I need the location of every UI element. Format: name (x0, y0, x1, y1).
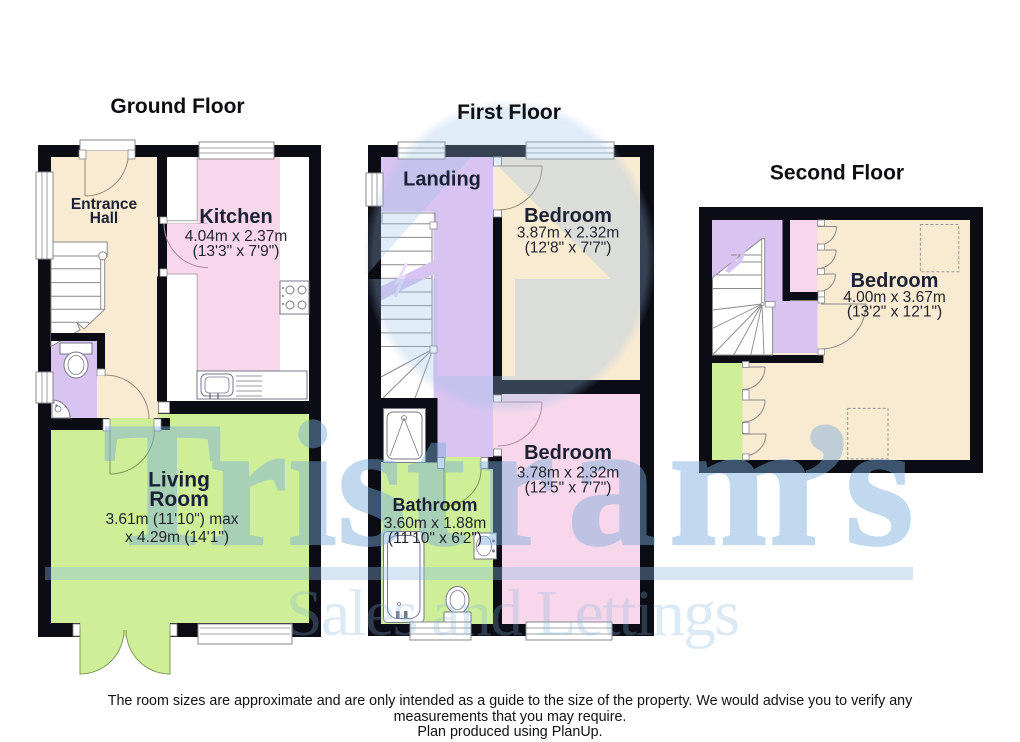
svg-text:x 4.29m (14'1"): x 4.29m (14'1") (125, 529, 229, 546)
svg-text:Second Floor: Second Floor (770, 162, 904, 185)
svg-text:3.61m (11'10") max: 3.61m (11'10") max (105, 511, 238, 528)
svg-text:First Floor: First Floor (457, 101, 561, 124)
svg-text:Plan produced using PlanUp.: Plan produced using PlanUp. (417, 724, 602, 740)
svg-text:(13'3" x 7'9"): (13'3" x 7'9") (193, 243, 280, 260)
svg-text:Kitchen: Kitchen (199, 206, 272, 228)
svg-text:(12'5" x 7'7"): (12'5" x 7'7") (525, 480, 612, 497)
svg-text:Sales and Lettings: Sales and Lettings (286, 577, 740, 650)
svg-text:Hall: Hall (90, 210, 118, 227)
svg-text:Ground Floor: Ground Floor (110, 95, 244, 118)
svg-text:(13'2" x 12'1"): (13'2" x 12'1") (847, 304, 942, 321)
svg-text:measurements that you may requ: measurements that you may require. (394, 709, 627, 725)
svg-text:Tristram’s: Tristram’s (103, 385, 914, 583)
svg-text:(12'8" x 7'7"): (12'8" x 7'7") (525, 240, 612, 257)
svg-text:Bathroom: Bathroom (393, 495, 478, 515)
svg-text:Bedroom: Bedroom (524, 442, 612, 464)
svg-text:The room sizes are approximate: The room sizes are approximate and are o… (108, 693, 913, 709)
svg-text:Landing: Landing (403, 169, 481, 191)
svg-text:Room: Room (149, 488, 209, 511)
svg-text:(11'10" x 6'2"): (11'10" x 6'2") (388, 530, 482, 547)
